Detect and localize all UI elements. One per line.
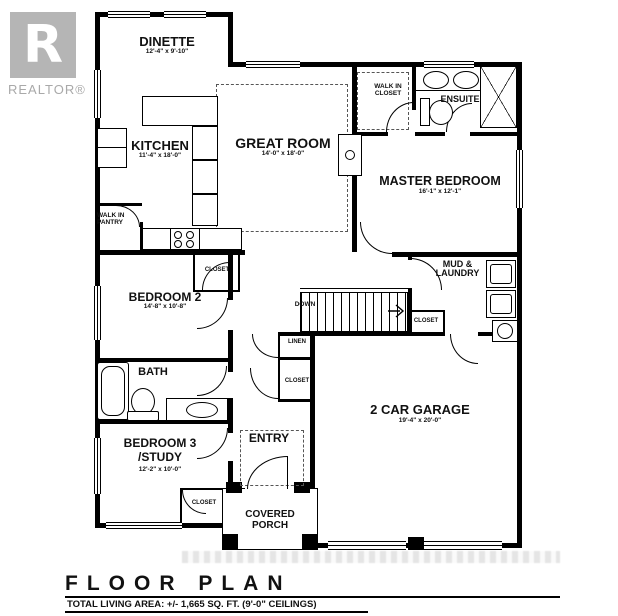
- window: [94, 70, 101, 118]
- page-title: FLOOR PLAN: [65, 572, 292, 596]
- window: [424, 61, 474, 68]
- room-label-entry: ENTRY: [238, 432, 300, 445]
- stove-burner: [174, 231, 182, 239]
- sink: [453, 71, 479, 89]
- porch-post: [302, 534, 318, 550]
- room-label-walk-in-closet: WALK IN CLOSET: [362, 84, 414, 98]
- door-arc: [252, 334, 278, 358]
- stair-rail: [300, 288, 408, 289]
- fireplace-detail: [345, 150, 355, 160]
- toilet-base: [127, 411, 159, 421]
- wall: [238, 252, 240, 292]
- wall: [278, 332, 412, 336]
- stove-burner: [174, 240, 182, 248]
- garage-door: [328, 541, 406, 550]
- room-dims-kitchen: 11'-4" x 18'-0": [110, 153, 210, 160]
- covered-porch-line2: PORCH: [252, 520, 288, 531]
- stove: [170, 228, 200, 250]
- mud-laundry-line2: LAUNDRY: [436, 268, 480, 278]
- room-dims-garage: 19'-4" x 20'-0": [345, 418, 495, 425]
- title-underline: [65, 596, 560, 598]
- walk-in-pantry-line2: PANTRY: [97, 219, 123, 226]
- wall: [228, 12, 233, 67]
- room-dims-great-room: 14'-0" x 18'-0": [220, 151, 346, 158]
- wall: [415, 132, 445, 136]
- door-arc: [360, 222, 392, 254]
- wall: [95, 250, 245, 255]
- window: [106, 522, 182, 529]
- dryer-inner: [490, 294, 512, 314]
- room-label-dinette: DINETTE: [112, 35, 222, 49]
- annotation-linen: LINEN: [279, 339, 315, 345]
- sink: [423, 71, 449, 89]
- great-room-ceiling-line: [216, 84, 348, 232]
- room-label-covered-porch: COVERED PORCH: [228, 510, 312, 531]
- room-label-master-bedroom: MASTER BEDROOM: [360, 175, 520, 188]
- subtitle-underline: [65, 611, 368, 613]
- room-dims-bedroom-2: 14'-8" x 10'-8": [100, 304, 230, 311]
- covered-porch-line1: COVERED: [245, 509, 294, 520]
- kitchen-cabinet: [192, 194, 218, 226]
- walk-in-closet-line2: CLOSET: [375, 90, 401, 97]
- wall: [392, 252, 522, 257]
- annotation-closet-bedroom-2: CLOSET: [196, 267, 238, 273]
- room-label-bath: BATH: [128, 367, 178, 379]
- wall: [278, 399, 314, 402]
- door-arc: [250, 368, 278, 399]
- living-area-note: TOTAL LIVING AREA: +/- 1,665 SQ. FT. (9'…: [67, 599, 317, 610]
- room-label-bedroom-3-study: /STUDY: [100, 451, 220, 464]
- room-label-kitchen: KITCHEN: [110, 139, 210, 153]
- annotation-closet-bedroom-3: CLOSET: [182, 500, 226, 506]
- garage-door-pier: [408, 537, 424, 550]
- wall: [408, 310, 445, 312]
- entry-door-leaf: [287, 456, 288, 489]
- realtor-logo-icon: R: [10, 12, 76, 78]
- room-label-walk-in-pantry: WALK IN PANTRY: [97, 213, 139, 227]
- realtor-wordmark: REALTOR®: [8, 82, 86, 97]
- vanity-counter-edge: [415, 90, 481, 91]
- room-label-ensuite: ENSUITE: [425, 95, 495, 104]
- porch-post: [222, 534, 238, 550]
- annotation-closet-hall: CLOSET: [279, 378, 315, 384]
- wall: [228, 330, 233, 372]
- door-arc: [450, 334, 478, 364]
- wall: [193, 252, 195, 292]
- wall-oven: [192, 160, 218, 194]
- floor-plan-page: R REALTOR®: [0, 0, 618, 616]
- room-label-mud-laundry: MUD & LAUNDRY: [415, 260, 500, 279]
- laundry-tub-drain: [497, 323, 513, 339]
- kitchen-island: [142, 96, 218, 126]
- room-label-great-room: GREAT ROOM: [220, 136, 346, 151]
- window: [108, 11, 150, 18]
- annotation-down: DOWN: [288, 302, 322, 309]
- wall: [412, 332, 445, 336]
- window: [246, 61, 300, 68]
- stairs-direction-arrow-icon: [388, 303, 406, 319]
- room-label-bedroom-2: BEDROOM 2: [100, 291, 230, 304]
- realtor-logo-letter: R: [23, 19, 63, 71]
- bathtub-inner: [101, 366, 125, 416]
- wall: [470, 132, 522, 136]
- room-label-garage: 2 CAR GARAGE: [345, 403, 495, 417]
- stove-burner: [186, 231, 194, 239]
- room-label-bedroom-3: BEDROOM 3: [100, 437, 220, 450]
- garage-door: [424, 541, 502, 550]
- window: [164, 11, 206, 18]
- room-dims-dinette: 12'-4" x 9'-10": [112, 49, 222, 56]
- annotation-closet-mud-laundry: CLOSET: [406, 318, 446, 324]
- wall: [228, 398, 233, 433]
- stove-burner: [186, 240, 194, 248]
- room-dims-master-bedroom: 16'-1" x 12'-1": [360, 189, 520, 196]
- room-dims-bedroom-3: 12'-2" x 10'-0": [100, 467, 220, 474]
- door-arc: [197, 366, 227, 396]
- sink: [186, 402, 218, 418]
- wall: [278, 357, 314, 360]
- watermark: [182, 551, 560, 563]
